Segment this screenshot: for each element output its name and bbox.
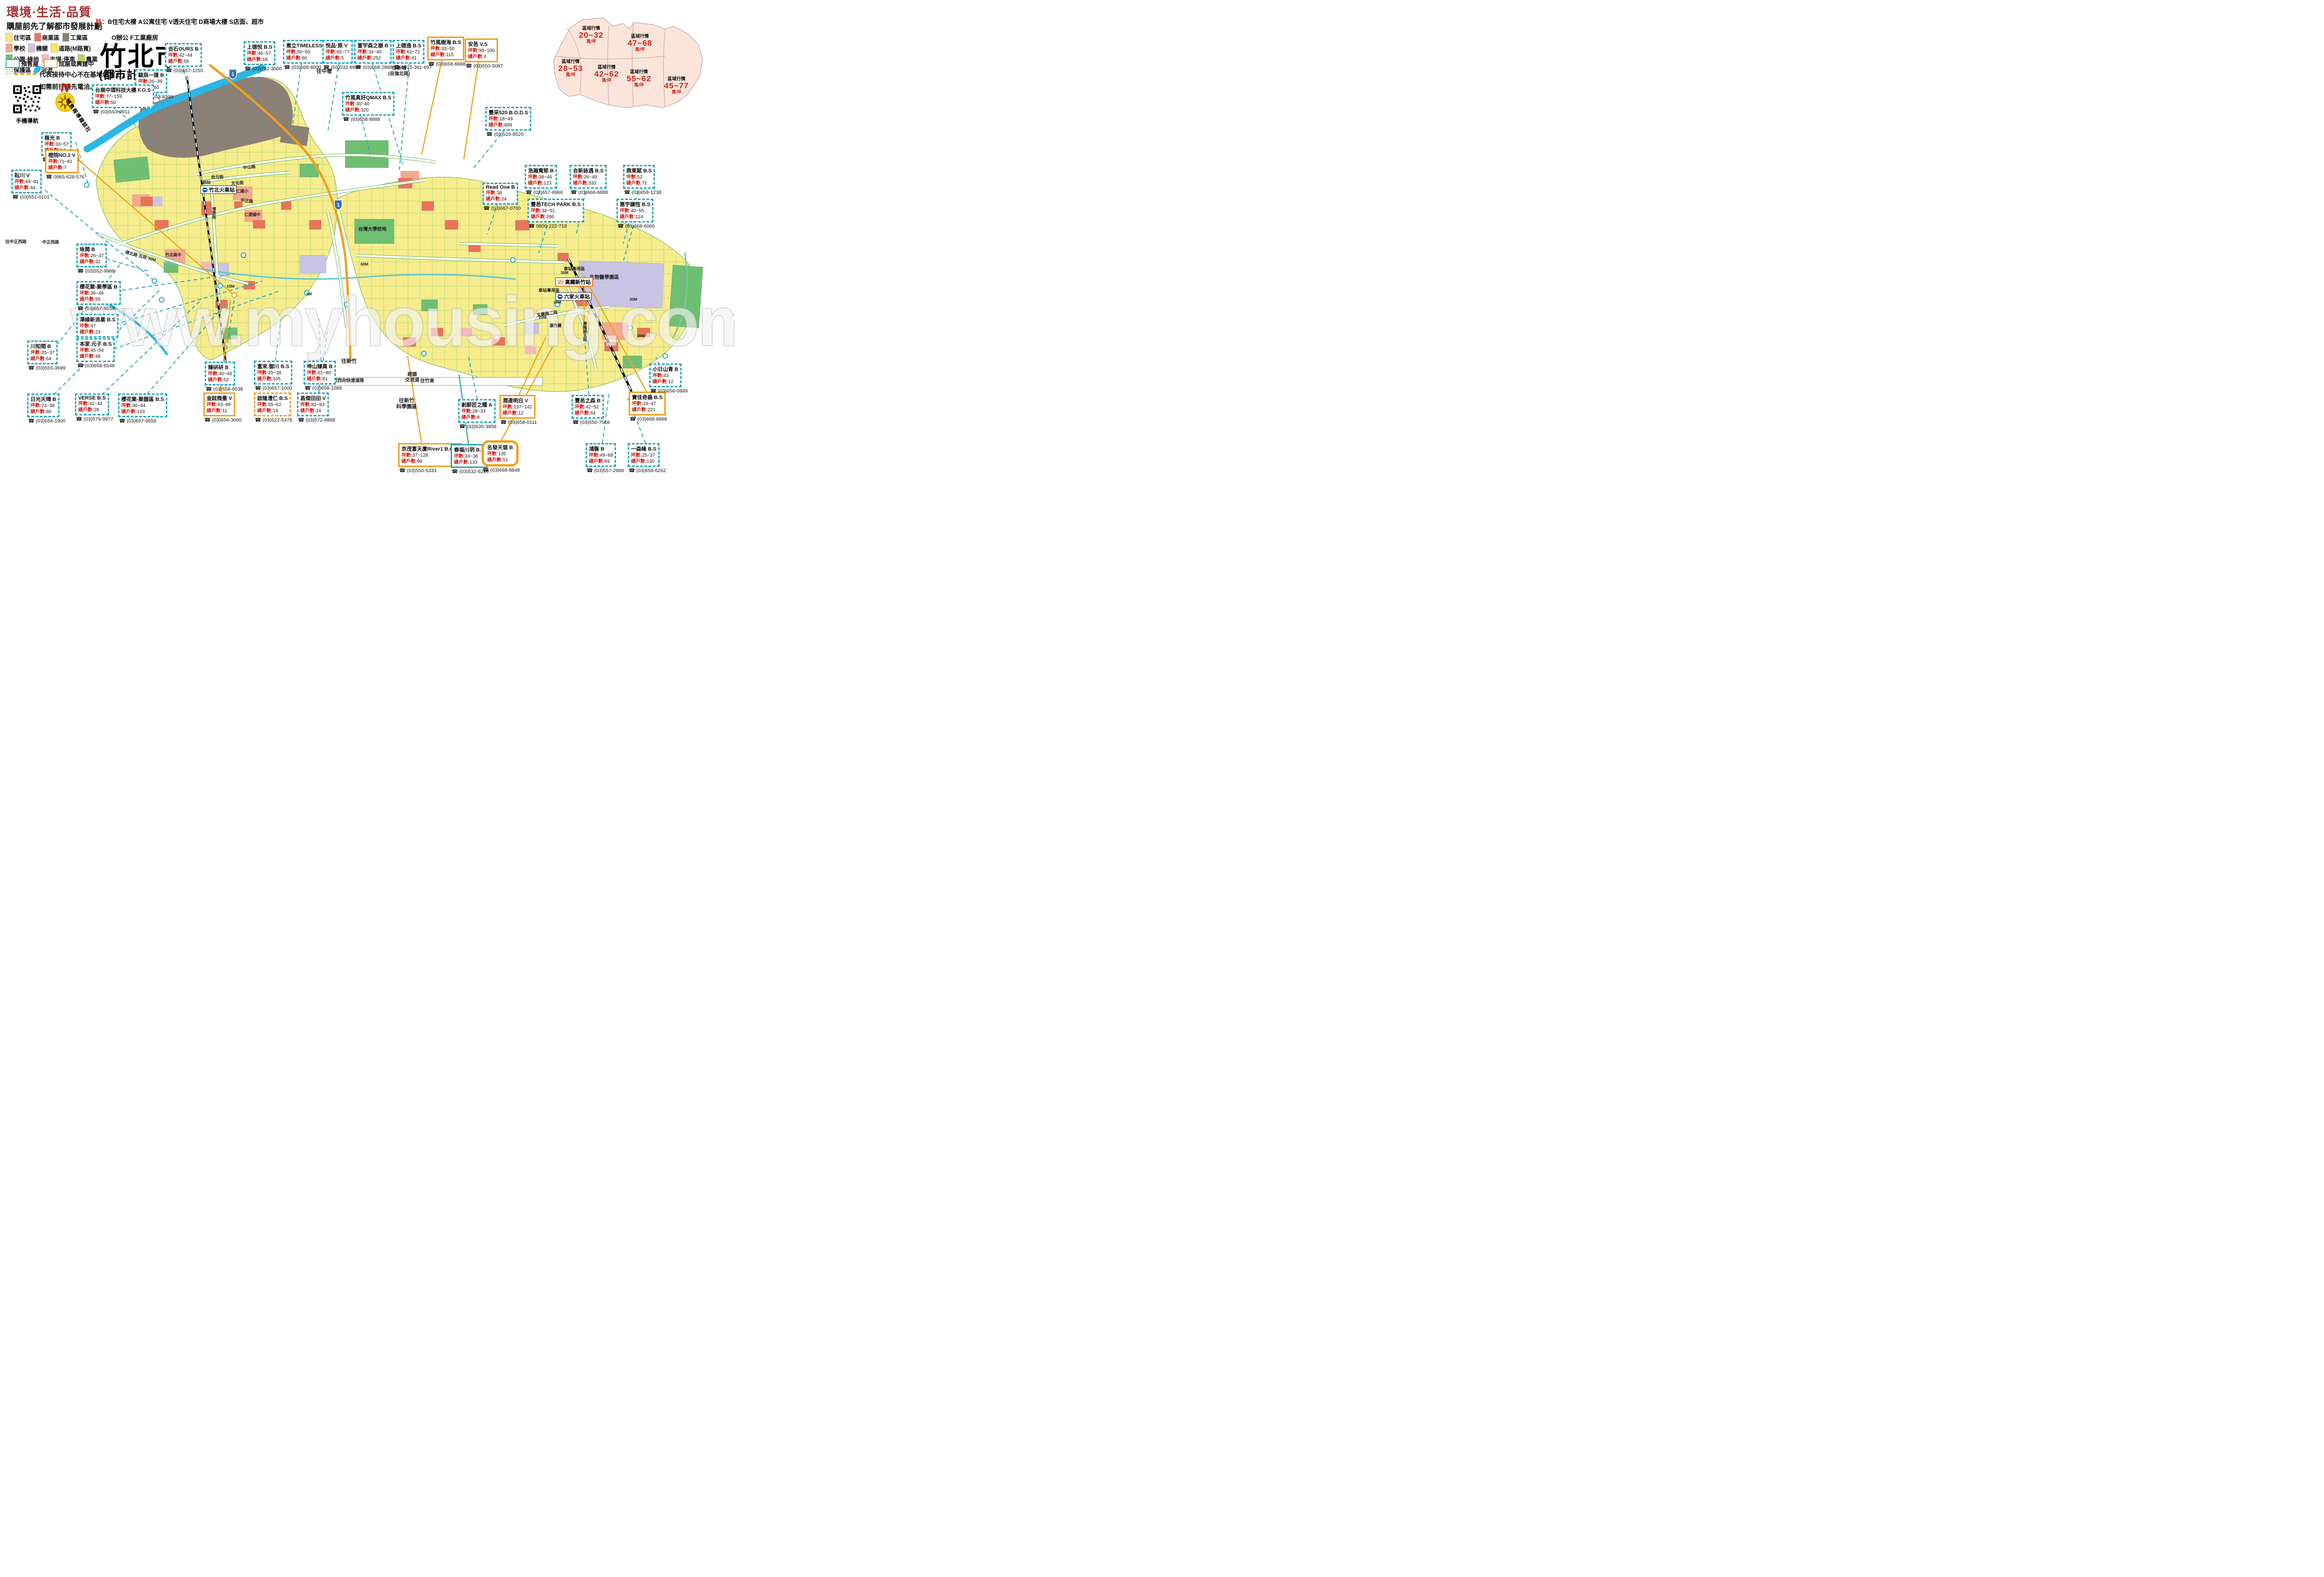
listing-name: 本家.元子 B.S bbox=[80, 340, 111, 348]
ping-value: 55~62 bbox=[268, 402, 281, 407]
ping-value: 46~57 bbox=[258, 51, 271, 56]
listing-box: 名發天琚 B 坪數:135 總戶數:51 bbox=[482, 440, 519, 466]
region-price-range: 20~32 bbox=[579, 31, 604, 39]
ping-value: 34~40 bbox=[368, 50, 381, 55]
station-badge: 竹北火車站 bbox=[200, 185, 237, 194]
listing-callout: 惠宇謙恆 B.S 坪數:40~55 總戶數:124 ☎ (03)668-6066 bbox=[616, 199, 655, 229]
region-price-unit: 萬/坪 bbox=[558, 73, 583, 77]
listing-callout: 富來.御川 B.S 坪數:25~38 總戶數:105 ☎ (03)657-100… bbox=[254, 361, 292, 391]
listing-name: 一森峰 B.S bbox=[631, 445, 656, 452]
units-label: 總戶數: bbox=[503, 411, 518, 416]
listing-callout: 名發天琚 B 坪數:135 總戶數:51 ☎ (03)668-8848 bbox=[482, 440, 520, 473]
units-label: 總戶數: bbox=[257, 408, 273, 414]
phone-icon: ☎ bbox=[304, 385, 311, 391]
units-label: 總戶數: bbox=[531, 215, 546, 220]
phone-icon: ☎ bbox=[355, 65, 362, 70]
units-value: 69 bbox=[604, 459, 609, 464]
listing-box: 鴻磐 B 坪數:49~68 總戶數:69 bbox=[586, 443, 616, 467]
units-value: 60 bbox=[302, 56, 307, 61]
units-value: 123 bbox=[543, 181, 551, 186]
listing-name: 京茂富天廈River1 B.O.S bbox=[401, 445, 459, 452]
phone-icon: ☎ bbox=[630, 416, 636, 422]
ping-value: 40~46 bbox=[219, 371, 232, 377]
listing-name: 鼎東賦 B.S bbox=[626, 167, 652, 174]
listing-name: Read One B bbox=[486, 185, 515, 190]
phone-icon: ☎ bbox=[399, 468, 406, 474]
phone-icon: ☎ bbox=[323, 65, 330, 70]
listing-phone: ☎ (03)552-9988 bbox=[76, 268, 115, 274]
listing-phone: ☎ (03)572-8888 bbox=[297, 417, 335, 423]
phone-icon: ☎ bbox=[255, 385, 261, 391]
map-label: 台元街 bbox=[211, 175, 223, 179]
units-label: 總戶數: bbox=[489, 123, 504, 128]
units-value: 81 bbox=[322, 377, 327, 382]
map-poster: 1 1 bbox=[0, 0, 735, 498]
station-name: 竹北火車站 bbox=[209, 186, 235, 193]
ping-value: 71~81 bbox=[59, 159, 72, 164]
phone-number: (03)520-8520 bbox=[494, 132, 524, 137]
listing-name: 豐采520 B.O.D.S bbox=[489, 109, 528, 116]
listing-name: 鴻磐 B bbox=[589, 445, 613, 452]
listing-name: 櫻花聚-聚馥區 B.S bbox=[121, 395, 164, 403]
phone-icon: ☎ bbox=[204, 417, 211, 423]
map-label: 仁愛國中 bbox=[245, 213, 260, 217]
units-label: 總戶數: bbox=[487, 458, 503, 463]
listing-box: Read One B 坪數:38 總戶數:24 bbox=[483, 183, 518, 205]
units-value: 133 bbox=[469, 460, 477, 465]
listing-callout: 創薪匠之耀 A 坪數:28~33 總戶數:8 ☎ (03)535-3958 bbox=[458, 399, 497, 429]
listing-box: 澤緣新浪巢 B.S 坪數:47 總戶數:23 bbox=[76, 314, 119, 338]
listing-phone: ☎ (03)550-5087 bbox=[465, 63, 503, 69]
units-value: 56 bbox=[184, 59, 189, 64]
listing-name: 悅品·原 V bbox=[326, 42, 349, 49]
map-label: 往竹東 bbox=[420, 378, 434, 384]
listing-box: 浩瀚寬郁 B 坪數:38~46 總戶數:123 bbox=[525, 165, 557, 189]
units-label: 總戶數: bbox=[573, 181, 588, 186]
phone-number: (03)658-6262 bbox=[637, 468, 666, 474]
units-value: 18 bbox=[262, 57, 267, 62]
phone-number: (03)658-0999 bbox=[658, 388, 688, 394]
phone-icon: ☎ bbox=[77, 268, 84, 274]
phone-number: (03)579-9977 bbox=[84, 416, 113, 422]
listing-name: 喬立TIMELESS B bbox=[286, 42, 327, 49]
listing-box: 創薪匠之耀 A 坪數:28~33 總戶數:8 bbox=[458, 399, 496, 423]
phone-number: (03)657-9558 bbox=[85, 306, 115, 311]
listing-phone: ☎ (03)668-6066 bbox=[616, 223, 655, 229]
listing-name: 坤山臻真 B bbox=[307, 363, 333, 370]
ping-label: 坪數: bbox=[15, 179, 25, 185]
units-label: 總戶數: bbox=[326, 56, 341, 61]
listing-name: 合新詠遇 B.S bbox=[573, 167, 603, 174]
listing-phone: ☎ (03)657-6966 bbox=[525, 189, 563, 195]
phone-icon: ☎ bbox=[77, 306, 84, 311]
units-value: 8 bbox=[477, 415, 480, 420]
ping-label: 坪數: bbox=[286, 50, 297, 55]
ping-label: 坪數: bbox=[468, 48, 479, 53]
listing-callout: 坤山臻真 B 坪數:61~80 總戶數:81 ☎ (03)658-1088 bbox=[304, 361, 342, 391]
phone-icon: ☎ bbox=[650, 388, 657, 394]
phone-number: (03)762-3000 bbox=[252, 66, 282, 72]
ping-label: 坪數: bbox=[80, 348, 90, 353]
ping-label: 坪數: bbox=[95, 94, 106, 99]
phone-icon: ☎ bbox=[483, 467, 489, 473]
ping-value: 33~50 bbox=[441, 46, 454, 52]
ping-label: 坪數: bbox=[454, 454, 465, 459]
listing-name: 寶佳奇磊 B.S bbox=[632, 393, 662, 401]
phone-number: (03)668-6888 bbox=[638, 416, 667, 422]
units-label: 總戶數: bbox=[626, 181, 642, 186]
ping-label: 坪數: bbox=[30, 350, 41, 355]
listing-box: 惠宇謙恆 B.S 坪數:40~55 總戶數:124 bbox=[616, 199, 653, 222]
region-price: 區域行情 55~62 萬/坪 bbox=[627, 70, 652, 87]
listing-box: 本家.元子 B.S 坪數:45~54 總戶數:48 bbox=[76, 338, 115, 362]
map-label: 生物醫學園區 bbox=[590, 274, 619, 280]
listing-phone: ☎ 0965-628-576 bbox=[45, 174, 84, 180]
listing-callout: 啟隆澧仁 B.S 坪數:55~62 總戶數:19 ☎ (03)522-5378 bbox=[254, 392, 292, 423]
listing-name: 富宇森之樹 B bbox=[357, 42, 388, 49]
map-label: 60M bbox=[361, 262, 369, 267]
units-value: 64 bbox=[46, 356, 51, 362]
units-value: 99 bbox=[417, 459, 422, 464]
listing-name: 川知間 B bbox=[30, 342, 54, 350]
units-label: 總戶數: bbox=[401, 459, 417, 464]
listing-box: 合石OURS B 坪數:42~44 總戶數:56 bbox=[165, 43, 202, 67]
map-label: 30M bbox=[630, 297, 638, 302]
units-value: 60 bbox=[46, 409, 51, 415]
listing-name: 合石OURS B bbox=[168, 45, 199, 52]
units-value: 48 bbox=[95, 354, 100, 359]
phone-number: (03)656-3000 bbox=[212, 417, 242, 423]
region-price-range: 55~62 bbox=[627, 74, 652, 83]
ping-value: 24~36 bbox=[465, 454, 478, 459]
listing-callout: 豐邑之森 B 坪數:42~52 總戶數:64 ☎ (03)550-7568 bbox=[572, 395, 610, 425]
units-value: 55 bbox=[95, 297, 100, 302]
region-price-unit: 萬/坪 bbox=[628, 47, 653, 52]
listing-box: 寶佳奇磊 B.S 坪數:19~47 總戶數:221 bbox=[629, 392, 666, 415]
listing-callout: 臻研研 B 坪數:40~46 總戶數:52 ☎ (03)558-9538 bbox=[205, 362, 243, 392]
units-label: 總戶數: bbox=[431, 52, 446, 58]
phone-icon: ☎ bbox=[466, 63, 472, 69]
station-icon bbox=[202, 187, 208, 192]
listing-box: 悅品·原 V 坪數:65~77 總戶數:5 bbox=[322, 40, 353, 64]
map-label: 往新竹 科學園區 bbox=[396, 398, 417, 409]
ping-value: 37~128 bbox=[412, 453, 428, 458]
ping-label: 坪數: bbox=[620, 208, 631, 214]
listing-phone: ☎ (03)558-9538 bbox=[205, 386, 243, 392]
units-label: 總戶數: bbox=[632, 407, 647, 413]
phone-icon: ☎ bbox=[500, 420, 507, 425]
ping-label: 坪數: bbox=[168, 53, 179, 58]
listing-callout: 安邑 V.S 坪數:99~100 總戶數:4 ☎ (03)550-5087 bbox=[465, 38, 503, 69]
ping-value: 26~37 bbox=[90, 253, 104, 259]
ping-value: 66~81 bbox=[25, 179, 38, 185]
ping-label: 坪數: bbox=[207, 402, 217, 407]
listing-phone: ☎ 0915-361-697 bbox=[393, 64, 432, 70]
ping-label: 坪數: bbox=[78, 401, 89, 407]
phone-number: (03)657-6966 bbox=[534, 190, 563, 195]
ping-value: 34~51 bbox=[542, 208, 555, 214]
listing-phone: ☎ (03)668-6888 bbox=[570, 189, 608, 195]
ping-label: 坪數: bbox=[528, 175, 539, 180]
ping-label: 坪數: bbox=[431, 46, 441, 52]
units-label: 總戶數: bbox=[653, 379, 668, 385]
listing-name: 名發天琚 B bbox=[487, 444, 513, 451]
phone-number: (03)553-9911 bbox=[101, 109, 130, 115]
map-label: 博愛街 bbox=[211, 207, 216, 219]
listing-phone: ☎ (03)551-0101 bbox=[11, 194, 50, 200]
listing-phone: ☎ (03)657-1000 bbox=[254, 385, 292, 391]
phone-number: (03)657-9558 bbox=[127, 418, 156, 424]
listing-callout: 浩瀚寬郁 B 坪數:38~46 總戶數:123 ☎ (03)657-6966 bbox=[525, 165, 563, 195]
listing-name: 豐邑之森 B bbox=[575, 397, 601, 404]
listing-box: 安邑 V.S 坪數:99~100 總戶數:4 bbox=[465, 38, 498, 62]
listing-phone: ☎ (03)658-0999 bbox=[649, 388, 688, 394]
phone-number: (03)550-5087 bbox=[474, 63, 503, 69]
ping-label: 坪數: bbox=[632, 401, 643, 407]
listing-box: 竹風樹海 B.S 坪數:33~50 總戶數:115 bbox=[427, 37, 464, 60]
phone-icon: ☎ bbox=[572, 420, 579, 425]
ping-label: 坪數: bbox=[489, 117, 499, 122]
listing-callout: 上德悅 B.S 坪數:46~57 總戶數:18 ☎ (03)762-3000 bbox=[244, 41, 282, 72]
phone-number: (03)667-0700 bbox=[491, 206, 521, 211]
listing-callout: 豐邑TECH PARK B.S 坪數:34~51 總戶數:286 ☎ 0800-… bbox=[527, 199, 584, 229]
region-price-unit: 萬/坪 bbox=[664, 90, 689, 94]
phone-number: (03)535-3958 bbox=[467, 424, 497, 429]
listing-box: 日光天晴 B 坪數:23~38 總戶數:60 bbox=[27, 393, 59, 417]
phone-icon: ☎ bbox=[245, 66, 251, 72]
listing-callout: 鴻磐 B 坪數:49~68 總戶數:69 ☎ (03)557-2888 bbox=[586, 443, 624, 474]
listing-box: VERSE B.S 坪數:41~44 總戶數:28 bbox=[75, 393, 109, 415]
region-price: 區域行情 20~32 萬/坪 bbox=[579, 26, 604, 44]
region-price-unit: 萬/坪 bbox=[579, 39, 604, 44]
listing-name: 浩瀚寬郁 B bbox=[528, 167, 554, 174]
listing-box: 川知間 B 坪數:25~37 總戶數:64 bbox=[27, 341, 58, 364]
listing-box: 一森峰 B.S 坪數:25~37 總戶數:130 bbox=[628, 443, 660, 467]
listing-phone: ☎ (03)522-5378 bbox=[254, 417, 292, 423]
units-value: 105 bbox=[273, 377, 281, 382]
station-name: 高鐵新竹站 bbox=[565, 278, 591, 286]
phone-number: (03)522-5378 bbox=[263, 417, 292, 423]
listing-box: 咏閱 B 坪數:26~37 總戶數:32 bbox=[76, 244, 107, 267]
listing-box: 金鉉微墨 V 坪數:63~88 總戶數:11 bbox=[203, 392, 235, 416]
ping-value: 77~159 bbox=[106, 94, 122, 99]
ping-label: 坪數: bbox=[45, 142, 55, 147]
units-value: 28 bbox=[94, 407, 99, 413]
phone-icon: ☎ bbox=[459, 424, 466, 429]
listing-phone: ☎ (03)658-1088 bbox=[304, 385, 342, 391]
ping-label: 坪數: bbox=[307, 370, 318, 376]
ping-label: 坪數: bbox=[257, 370, 268, 376]
listing-callout: 合新詠遇 B.S 坪數:26~49 總戶數:333 ☎ (03)668-6888 bbox=[570, 165, 608, 195]
phone-icon: ☎ bbox=[343, 117, 349, 122]
ping-label: 坪數: bbox=[461, 409, 472, 414]
units-value: 71 bbox=[642, 181, 647, 186]
phone-number: (03)658-1088 bbox=[312, 385, 342, 391]
phone-number: (03)668-6066 bbox=[625, 223, 655, 229]
phone-icon: ☎ bbox=[394, 65, 400, 70]
ping-label: 坪數: bbox=[30, 403, 41, 408]
phone-number: (03)555-3699 bbox=[36, 365, 66, 371]
listing-name: 安邑 V.S bbox=[468, 40, 495, 48]
phone-icon: ☎ bbox=[486, 132, 493, 137]
listing-box: 櫻花聚-聚學區 B 坪數:36~46 總戶數:55 bbox=[76, 281, 121, 305]
map-label: 前站 bbox=[202, 180, 210, 185]
listing-phone: ☎ (03)657-9558 bbox=[76, 305, 121, 311]
phone-number: (03)656-1900 bbox=[36, 418, 66, 424]
listing-phone: ☎ (03)668-8848 bbox=[482, 467, 520, 473]
listing-phone: ☎ (03)658-1238 bbox=[623, 189, 661, 195]
units-value: 32 bbox=[95, 259, 100, 265]
ping-label: 坪數: bbox=[575, 405, 586, 410]
phone-icon: ☎ bbox=[587, 468, 593, 474]
map-label: 30M bbox=[561, 271, 569, 275]
ping-value: 26~39 bbox=[149, 79, 162, 84]
phone-number: (03)657-1255 bbox=[174, 68, 203, 74]
phone-icon: ☎ bbox=[12, 194, 19, 200]
ping-value: 63~88 bbox=[217, 402, 230, 407]
listing-box: 竹風真好QMAX B.S 坪數:30~40 總戶數:320 bbox=[342, 92, 394, 116]
units-value: 5 bbox=[341, 56, 344, 61]
listing-name: 潤達明白 V bbox=[503, 397, 532, 404]
map-label: 康乃薾 bbox=[549, 324, 562, 328]
phone-icon: ☎ bbox=[629, 468, 635, 474]
phone-icon: ☎ bbox=[255, 417, 261, 423]
listing-box: 合新詠遇 B.S 坪數:26~49 總戶數:333 bbox=[570, 165, 607, 189]
map-label: 20M bbox=[637, 334, 645, 339]
region-price: 區域行情 28~53 萬/坪 bbox=[558, 59, 583, 77]
listing-box: 上德逸 B.S 坪數:62~72 總戶數:41 bbox=[393, 40, 424, 64]
region-price-range: 45~77 bbox=[664, 81, 689, 90]
units-value: 252 bbox=[373, 56, 381, 61]
units-label: 總戶數: bbox=[15, 185, 30, 191]
ping-label: 坪數: bbox=[531, 208, 542, 214]
units-value: 115 bbox=[446, 52, 453, 58]
ping-label: 坪數: bbox=[300, 402, 311, 407]
listing-phone: ☎ (03)658-6548 bbox=[76, 363, 115, 369]
ping-value: 38~46 bbox=[539, 175, 552, 180]
phone-icon: ☎ bbox=[206, 386, 212, 392]
map-label: 20M bbox=[554, 300, 562, 305]
units-label: 總戶數: bbox=[286, 56, 302, 61]
phone-number: (03)552-9988 bbox=[85, 268, 115, 274]
listing-callout: VERSE B.S 坪數:41~44 總戶數:28 ☎ (03)579-9977 bbox=[75, 393, 113, 422]
ping-label: 坪數: bbox=[121, 403, 132, 408]
ping-value: 30~44 bbox=[132, 403, 145, 408]
units-label: 總戶數: bbox=[307, 377, 322, 382]
listing-callout: 竹風真好QMAX B.S 坪數:30~40 總戶數:320 ☎ (03)658-… bbox=[342, 92, 394, 122]
listing-name: 惠宇謙恆 B.S bbox=[620, 200, 650, 208]
ping-label: 坪數: bbox=[631, 453, 642, 458]
units-label: 總戶數: bbox=[30, 409, 46, 415]
ping-value: 18~49 bbox=[499, 117, 512, 122]
units-label: 總戶數: bbox=[247, 57, 262, 62]
phone-number: (03)572-8888 bbox=[306, 417, 335, 423]
units-value: 19 bbox=[273, 408, 278, 414]
ping-label: 坪數: bbox=[80, 253, 90, 259]
units-label: 總戶數: bbox=[80, 354, 95, 359]
region-price: 區域行情 42~62 萬/坪 bbox=[594, 65, 619, 82]
units-value: 133 bbox=[137, 409, 145, 415]
phone-icon: ☎ bbox=[624, 190, 631, 195]
units-label: 總戶數: bbox=[454, 460, 469, 465]
listing-phone: ☎ (03)656-1900 bbox=[27, 418, 66, 424]
listing-box: 昌傑田田 V 坪數:82~93 總戶數:14 bbox=[297, 392, 329, 416]
map-label: 8M bbox=[306, 292, 312, 296]
listing-name: 臻研研 B bbox=[208, 363, 232, 371]
units-value: 50 bbox=[111, 100, 116, 105]
map-label: 中正西路 bbox=[42, 240, 59, 244]
ping-value: 36~46 bbox=[90, 291, 104, 296]
listing-callout: 一森峰 B.S 坪數:25~37 總戶數:130 ☎ (03)658-6262 bbox=[628, 443, 666, 474]
ping-value: 30~40 bbox=[356, 102, 369, 107]
listing-phone: ☎ 0800-222-718 bbox=[527, 223, 584, 229]
phone-number: (03)668-8848 bbox=[490, 467, 520, 473]
listing-name: 台展中環科技大樓 F.O.S bbox=[95, 86, 151, 94]
units-value: 40 bbox=[154, 85, 159, 90]
listing-callout: 日光天晴 B 坪數:23~38 總戶數:60 ☎ (03)656-1900 bbox=[27, 393, 66, 424]
phone-number: (03)668-2888 bbox=[363, 65, 393, 70]
listing-name: 植光 B bbox=[45, 134, 68, 141]
listing-name: 澤緣新浪巢 B.S bbox=[80, 316, 115, 323]
listing-callout: 金鉉微墨 V 坪數:63~88 總戶數:11 ☎ (03)656-3000 bbox=[203, 392, 242, 423]
listing-callout: 咏閱 B 坪數:26~37 總戶數:32 ☎ (03)552-9988 bbox=[76, 244, 115, 274]
phone-icon: ☎ bbox=[452, 469, 458, 474]
listing-box: 坤山臻真 B 坪數:61~80 總戶數:81 bbox=[304, 361, 336, 385]
listing-phone: ☎ (03)658-8888 bbox=[427, 61, 466, 67]
ping-value: 25~38 bbox=[268, 370, 281, 376]
units-label: 總戶數: bbox=[168, 59, 184, 64]
units-value: 44 bbox=[30, 185, 35, 191]
units-value: 14 bbox=[316, 408, 321, 414]
station-icon bbox=[557, 294, 563, 299]
ping-value: 42~44 bbox=[179, 53, 192, 58]
listing-name: 金鉉微墨 V bbox=[207, 394, 232, 402]
phone-icon: ☎ bbox=[298, 417, 304, 423]
region-price-range: 42~62 bbox=[594, 70, 619, 78]
listing-name: 竹風樹海 B.S bbox=[431, 38, 461, 46]
listing-box: 啟隆澧仁 B.S 坪數:55~62 總戶數:19 bbox=[254, 392, 291, 416]
station-badge: 高鐵新竹站 bbox=[555, 277, 593, 287]
listing-phone: ☎ (03)657-9558 bbox=[118, 418, 167, 424]
ping-value: 99~100 bbox=[479, 48, 495, 53]
ping-label: 坪數: bbox=[326, 50, 336, 55]
ping-value: 135 bbox=[498, 452, 506, 457]
units-value: 320 bbox=[361, 108, 369, 113]
phone-icon: ☎ bbox=[428, 61, 435, 67]
phone-icon: ☎ bbox=[526, 190, 532, 195]
ping-value: 47 bbox=[90, 324, 96, 329]
units-value: 221 bbox=[647, 407, 655, 413]
phone-number: (03)658-8888 bbox=[351, 117, 380, 122]
listing-phone: ☎ (03)557-2888 bbox=[586, 467, 624, 474]
listing-name: 啟隆澧仁 B.S bbox=[257, 394, 288, 402]
units-label: 總戶數: bbox=[121, 409, 137, 415]
phone-icon: ☎ bbox=[28, 365, 35, 371]
region-price-unit: 萬/坪 bbox=[594, 78, 619, 82]
ping-label: 坪數: bbox=[357, 50, 368, 55]
phone-number: 0800-222-718 bbox=[536, 223, 567, 229]
ping-label: 坪數: bbox=[487, 452, 498, 457]
region-price: 區域行情 47~68 萬/坪 bbox=[628, 34, 653, 52]
listing-name: 豐邑TECH PARK B.S bbox=[531, 200, 581, 208]
listing-phone: ☎ (03)550-7568 bbox=[572, 419, 610, 425]
phone-number: (03)657-1000 bbox=[263, 385, 292, 391]
ping-value: 82~93 bbox=[311, 402, 324, 407]
listing-name: 橙院NO.2 V bbox=[48, 151, 75, 159]
map-label: 往新竹 bbox=[342, 359, 357, 365]
listing-callout: Read One B 坪數:38 總戶數:24 ☎ (03)667-0700 bbox=[483, 183, 521, 211]
phone-icon: ☎ bbox=[571, 190, 577, 195]
